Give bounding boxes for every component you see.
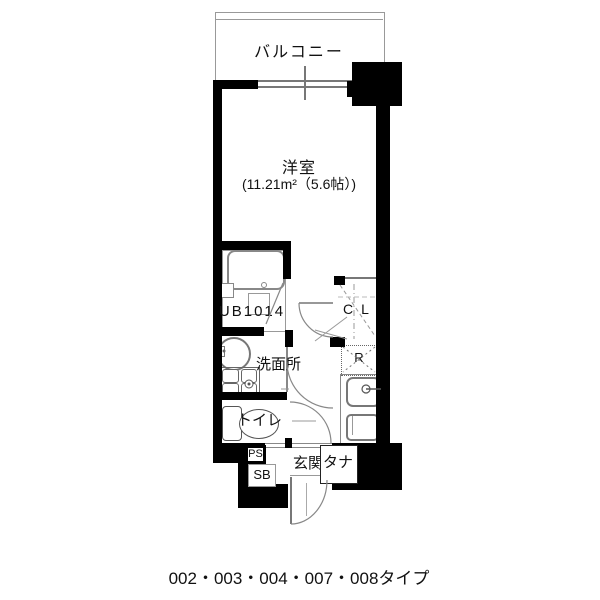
- kitchen-stove: [346, 414, 379, 441]
- wall-right: [376, 100, 390, 445]
- shoe-box-label: SB: [249, 467, 275, 482]
- wall-bath-right: [283, 241, 291, 279]
- wall-left: [213, 80, 222, 463]
- plan-caption: 002・003・004・007・008タイプ: [149, 564, 449, 589]
- main-room-area: (11.21m²（5.6帖）): [199, 174, 399, 194]
- wall-closet-bottom-nub: [330, 337, 345, 347]
- bath-label: UB1014: [214, 303, 290, 320]
- wall-hall-nub-lower: [285, 438, 292, 448]
- refrigerator-label: R: [341, 350, 377, 365]
- entrance-shelf-box: タナ: [320, 445, 358, 484]
- washroom-label: 洗面所: [256, 353, 301, 374]
- entrance-label: 玄関: [293, 452, 323, 473]
- balcony-label: バルコニー: [239, 38, 359, 62]
- wall-closet-top-nub: [334, 276, 345, 285]
- toilet-label: トイレ: [237, 409, 282, 430]
- entrance-center-line: [306, 483, 307, 516]
- stove-divider-line: [352, 416, 353, 435]
- window-center-tick: [304, 66, 306, 100]
- balcony-rail-line: [215, 19, 383, 20]
- shower-control: [220, 283, 234, 298]
- pipe-space-label: PS: [248, 448, 263, 460]
- laundry-pad-2: [241, 369, 257, 383]
- wall-bath-top: [213, 241, 291, 250]
- wall-bath-bottom: [216, 327, 264, 336]
- floor-plan: バルコニー 洋室 (11.21m²（5.6帖）) UB1014 洗面所 トイレ …: [0, 0, 600, 600]
- closet-label: CL: [340, 301, 380, 317]
- entrance-shelf-label: タナ: [323, 451, 355, 472]
- wall-bottom-left-base: [238, 484, 288, 508]
- bathtub: [227, 250, 285, 290]
- plan-symbols: [0, 0, 600, 600]
- wall-top-left: [213, 80, 258, 89]
- shoe-box: SB: [248, 464, 276, 487]
- laundry-pad-1: [222, 369, 239, 383]
- pipe-space-box: PS: [245, 445, 266, 464]
- toilet-door-arc: [290, 402, 331, 443]
- wall-hall-nub-upper: [285, 330, 293, 347]
- room-door-arc: [299, 303, 333, 337]
- wall-washroom-bottom: [213, 392, 287, 400]
- entrance-door-arc: [291, 480, 327, 524]
